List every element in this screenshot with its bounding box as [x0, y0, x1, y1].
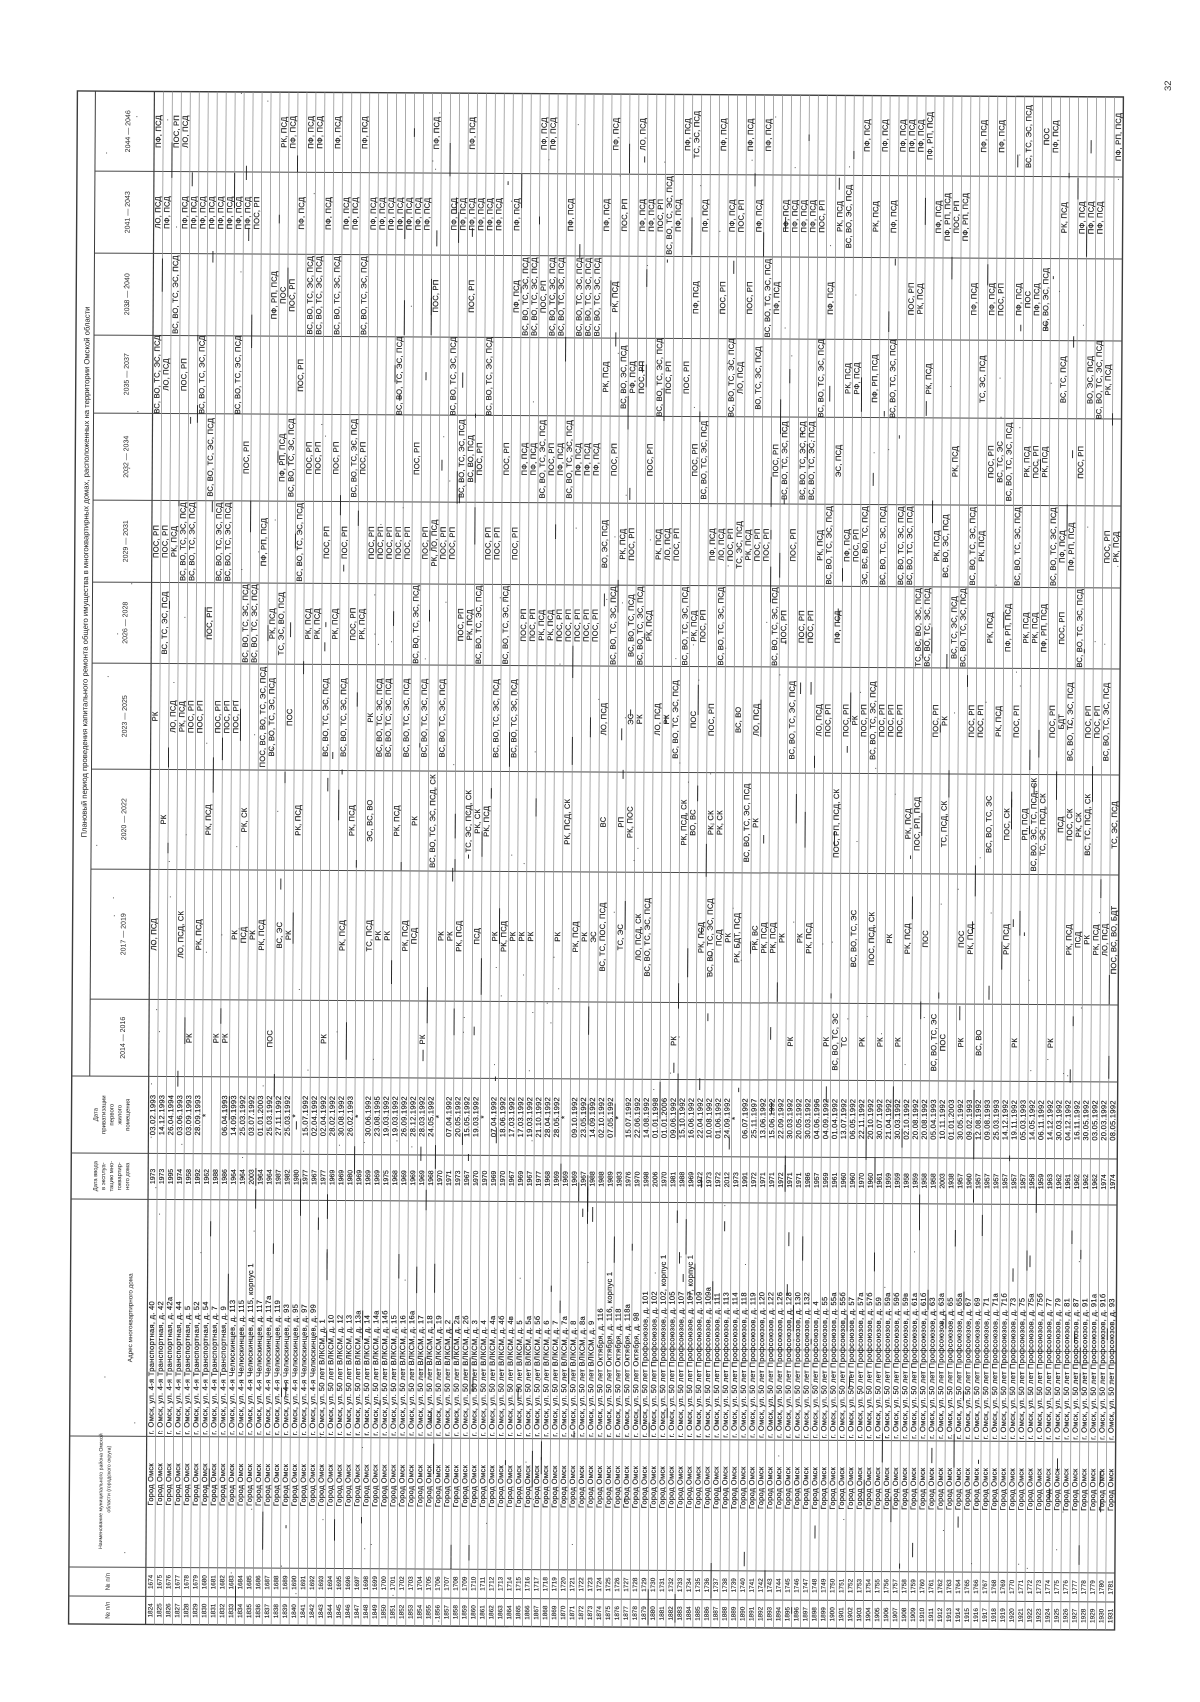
svg-text:ЛО, ПСД: ЛО, ПСД — [149, 918, 158, 950]
svg-text:01.01.1998: 01.01.1998 — [651, 1098, 660, 1139]
svg-text:Город Омск: Город Омск — [631, 1465, 640, 1508]
svg-text:РК, ПСД: РК, ПСД — [618, 529, 627, 560]
svg-text:1982: 1982 — [284, 1169, 291, 1185]
svg-text:1975: 1975 — [383, 1170, 390, 1186]
svg-text:1906: 1906 — [883, 1607, 890, 1622]
svg-text:30.08.1992: 30.08.1992 — [337, 1096, 346, 1137]
svg-text:1911: 1911 — [928, 1608, 935, 1622]
svg-text:1921: 1921 — [1018, 1608, 1025, 1623]
svg-text:Город Омск: Город Омск — [325, 1464, 334, 1507]
svg-text:1762: 1762 — [937, 1579, 944, 1594]
svg-text:ПОС, РП: ПОС, РП — [1012, 705, 1021, 738]
svg-text:ПОС, РП: ПОС, РП — [610, 443, 619, 476]
svg-text:Город Омск: Город Омск — [290, 1463, 299, 1506]
svg-text:РК: РК — [383, 930, 392, 940]
svg-text:1968: 1968 — [545, 1171, 552, 1187]
svg-text:1717: 1717 — [533, 1577, 540, 1592]
svg-text:ЭС, ВС, ВО, ТС, ПСД: ЭС, ВС, ВО, ТС, ПСД — [860, 506, 869, 585]
svg-text:1908: 1908 — [901, 1607, 908, 1622]
svg-text:ПОС, РП: ПОС, РП — [789, 529, 798, 562]
svg-text:1760: 1760 — [919, 1579, 926, 1594]
svg-text:ПОС, РП: ПОС, РП — [519, 609, 528, 642]
svg-text:ПОС, РП: ПОС, РП — [690, 444, 699, 477]
svg-text:01.01.2003: 01.01.2003 — [256, 1095, 265, 1136]
svg-text:РК: РК — [508, 931, 517, 941]
svg-text:ПОС, РП: ПОС, РП — [456, 608, 465, 641]
svg-text:1693: 1693 — [318, 1575, 325, 1590]
svg-text:1957: 1957 — [1020, 1174, 1027, 1190]
svg-text:15.07.1992: 15.07.1992 — [301, 1096, 310, 1137]
svg-text:ЛО, ПСД: ЛО, ПСД — [663, 528, 672, 560]
svg-text:ПФ, ПСД: ПФ, ПСД — [647, 199, 656, 232]
svg-text:Город Омск: Город Омск — [855, 1467, 864, 1510]
svg-text:ПФ, ПСД: ПФ, ПСД — [934, 201, 943, 234]
svg-text:ПОС, РП: ПОС, РП — [698, 610, 707, 643]
svg-text:РК, ПСД: РК, ПСД — [1091, 924, 1100, 955]
svg-text:Город Омск: Город Омск — [245, 1463, 254, 1506]
svg-text:1969: 1969 — [356, 1170, 363, 1186]
svg-text:ПОС, РП: ПОС, РП — [851, 529, 860, 562]
svg-text:1972: 1972 — [697, 1172, 704, 1188]
svg-text:РК, ПСД: РК, ПСД — [611, 282, 620, 313]
svg-text:1679: 1679 — [192, 1575, 199, 1590]
svg-text:17.03.1992: 17.03.1992 — [507, 1097, 516, 1138]
svg-text:1927: 1927 — [1072, 1608, 1079, 1623]
svg-text:1922: 1922 — [1027, 1608, 1034, 1623]
svg-text:1843: 1843 — [318, 1604, 325, 1619]
svg-text:22.04.1992: 22.04.1992 — [695, 1098, 704, 1139]
svg-text:Город Омск: Город Омск — [523, 1465, 532, 1508]
svg-text:ВС, ВО, ТС, ЭС, ПСД: ВС, ВО, ТС, ЭС, ПСД — [807, 421, 816, 500]
svg-text:ПФ, ПСД: ПФ, ПСД — [414, 198, 423, 231]
svg-text:1871: 1871 — [569, 1605, 576, 1620]
svg-text:ВС, ВО, ТС, ЭС, ПСД: ВС, ВО, ТС, ЭС, ПСД — [197, 335, 206, 414]
svg-text:19.11.1992: 19.11.1992 — [1010, 1100, 1019, 1140]
svg-text:1969: 1969 — [365, 1170, 372, 1186]
svg-text:ВС, ВО, ТС, ЭС, ПСД: ВС, ВО, ТС, ЭС, ПСД — [1013, 507, 1022, 586]
svg-text:ТС, ЭС, ВО, ПСД: ТС, ЭС, ВО, ПСД — [277, 592, 286, 655]
svg-text:26.09.1992: 26.09.1992 — [399, 1096, 408, 1137]
svg-text:ЛО, ПСД: ЛО, ПСД — [161, 358, 170, 390]
svg-text:РК, ПСД: РК, ПСД — [903, 923, 912, 954]
svg-text:ПФ, ПСД: ПФ, ПСД — [1095, 201, 1104, 234]
svg-text:1998: 1998 — [643, 1171, 650, 1187]
svg-text:ВС, ВО, ТС, ЭС, ПСД: ВС, ВО, ТС, ЭС, ПСД — [474, 585, 483, 664]
svg-text:1892: 1892 — [758, 1606, 765, 1621]
svg-text:04.06.1996: 04.06.1996 — [812, 1098, 821, 1139]
svg-text:ВС, ВО, ТС, ЭС, ПСД, СК: ВС, ВО, ТС, ЭС, ПСД, СК — [428, 774, 438, 868]
svg-text:РК, ПСД: РК, ПСД — [654, 529, 663, 560]
svg-text:1771: 1771 — [1018, 1579, 1025, 1594]
svg-text:РК, ПСД: РК, ПСД — [257, 920, 266, 951]
svg-text:Город Омск: Город Омск — [218, 1463, 227, 1506]
svg-text:ТС, ЭС, ПСД, СК: ТС, ЭС, ПСД, СК — [1038, 793, 1047, 856]
svg-text:РК, ПСД, СК: РК, ПСД, СК — [679, 799, 688, 845]
svg-text:Город Омск: Город Омск — [487, 1465, 496, 1508]
svg-text:РК, ПСД: РК, ПСД — [465, 609, 474, 640]
svg-text:ЛО, ПСД: ЛО, ПСД — [181, 115, 190, 147]
svg-text:ПОС, РП: ПОС, РП — [726, 528, 735, 561]
svg-text:1963: 1963 — [1047, 1174, 1054, 1190]
svg-text:ВС, ЭС: ВС, ЭС — [275, 921, 284, 948]
svg-text:1834: 1834 — [237, 1603, 244, 1618]
svg-text:Город Омск: Город Омск — [792, 1466, 801, 1509]
svg-text:1971: 1971 — [796, 1172, 803, 1188]
svg-text:ПОС, РП: ПОС, РП — [859, 704, 868, 737]
svg-text:ПОС, ВС, ВО, БДТ: ПОС, ВС, ВО, БДТ — [1109, 906, 1118, 975]
svg-text:1680: 1680 — [201, 1575, 208, 1590]
svg-text:1971: 1971 — [787, 1172, 794, 1188]
svg-text:1742: 1742 — [758, 1578, 765, 1593]
svg-text:ПФ, ПСД: ПФ, ПСД — [602, 199, 611, 232]
svg-text:23.08.1995: 23.08.1995 — [372, 1096, 381, 1137]
svg-text:03.06.1993: 03.06.1993 — [175, 1095, 184, 1136]
svg-text:ПОС, РП: ПОС, РП — [385, 526, 394, 559]
svg-text:ВС, ВО, ТС, ЭС, ПСД: ВС, ВО, ТС, ЭС, ПСД — [888, 339, 897, 418]
svg-text:РК: РК — [893, 1037, 902, 1047]
svg-text:1772: 1772 — [1027, 1579, 1034, 1594]
svg-text:Город Омск: Город Омск — [1007, 1468, 1016, 1511]
svg-text:1969: 1969 — [688, 1172, 695, 1188]
svg-text:1957: 1957 — [975, 1173, 982, 1189]
svg-text:ПОС: ПОС — [279, 286, 288, 304]
svg-text:02.10.1992: 02.10.1992 — [597, 1097, 606, 1138]
svg-text:ПОС, РП: ПОС, РП — [1076, 446, 1085, 479]
svg-text:ВС, ТС, ЭС: ВС, ТС, ЭС — [995, 441, 1004, 483]
svg-text:ПФ, ПСД: ПФ, ПСД — [396, 197, 405, 230]
svg-text:Город Омск: Город Омск — [936, 1467, 945, 1510]
svg-text:РК, ЛО, ПСД: РК, ЛО, ПСД — [430, 520, 439, 567]
svg-text:2014 — 2016: 2014 — 2016 — [120, 1017, 127, 1059]
svg-text:Город Омск: Город Омск — [747, 1466, 756, 1509]
svg-text:Город Омск: Город Омск — [182, 1463, 191, 1506]
svg-text:*: * — [560, 1116, 569, 1119]
svg-text:1878: 1878 — [632, 1606, 639, 1621]
svg-text:ПФ, ПСД: ПФ, ПСД — [674, 199, 683, 232]
svg-text:1973: 1973 — [455, 1170, 462, 1186]
svg-text:ПОС, РП: ПОС, РП — [895, 704, 904, 737]
svg-text:РК: РК — [230, 930, 239, 940]
svg-text:1710: 1710 — [471, 1576, 478, 1591]
svg-text:ПОС, РП: ПОС, РП — [172, 115, 181, 148]
svg-text:1727: 1727 — [623, 1577, 630, 1592]
svg-text:ВС, ВО, ТС, ЭС, ПСД: ВС, ВО, ТС, ЭС, ПСД — [699, 421, 708, 500]
svg-text:Город Омск: Город Омск — [945, 1467, 954, 1510]
svg-text:1827: 1827 — [174, 1603, 181, 1618]
svg-text:03.02.1993: 03.02.1993 — [148, 1095, 157, 1136]
svg-text:1957: 1957 — [957, 1173, 964, 1189]
svg-text:1731: 1731 — [659, 1577, 666, 1592]
svg-text:1959: 1959 — [895, 1173, 902, 1189]
svg-text:1703: 1703 — [408, 1576, 415, 1591]
svg-text:1765: 1765 — [964, 1579, 971, 1594]
svg-text:*: * — [434, 1115, 443, 1118]
svg-text:1969: 1969 — [329, 1170, 336, 1186]
svg-text:РК: РК — [751, 818, 760, 828]
svg-text:ПОС, РП: ПОС, РП — [439, 527, 448, 560]
svg-text:РК, ПСД: РК, ПСД — [357, 609, 366, 640]
svg-text:ПОС, РП: ПОС, РП — [1084, 705, 1093, 738]
svg-text:ПФ, ПСД: ПФ, ПСД — [351, 197, 360, 230]
svg-text:РК, ПСД: РК, ПСД — [1104, 364, 1113, 395]
svg-text:РК, ПСД: РК, ПСД — [204, 804, 213, 835]
svg-text:1890: 1890 — [740, 1606, 747, 1621]
svg-text:1988: 1988 — [679, 1172, 686, 1188]
svg-text:ПОС, РП: ПОС, РП — [1048, 705, 1057, 738]
svg-text:ПФ, ПСД: ПФ, ПСД — [243, 197, 252, 230]
svg-text:1690: 1690 — [291, 1575, 298, 1590]
svg-text:ВС, ВО, ТС, ЭС, ПСД: ВС, ВО, ТС, ЭС, ПСД — [680, 587, 689, 666]
svg-text:2017 — 2019: 2017 — 2019 — [120, 913, 127, 955]
svg-text:1764: 1764 — [955, 1579, 962, 1594]
svg-text:ПФ, ПСД: ПФ, ПСД — [728, 199, 737, 232]
svg-text:2044 — 2046: 2044 — 2046 — [125, 110, 132, 152]
svg-text:1970: 1970 — [473, 1170, 480, 1186]
svg-text:*: * — [479, 1115, 488, 1118]
svg-text:Город Омск: Город Омск — [882, 1467, 891, 1510]
svg-text:1902: 1902 — [847, 1607, 854, 1622]
svg-text:РК, ПСД: РК, ПСД — [759, 922, 768, 953]
svg-text:РК, ПСД: РК, ПСД — [499, 921, 508, 952]
svg-text:1896: 1896 — [793, 1607, 800, 1622]
svg-text:01.06.1992: 01.06.1992 — [713, 1098, 722, 1139]
svg-text:РК: РК — [1046, 1038, 1055, 1048]
svg-text:1873: 1873 — [587, 1605, 594, 1620]
svg-text:ПФ, ПСД: ПФ, ПСД — [997, 120, 1006, 153]
svg-text:РК: РК — [724, 932, 733, 942]
svg-text:ПОС, РП: ПОС, РП — [288, 279, 297, 312]
svg-text:ВС, ВО, ТС, ЭС, ПСД: ВС, ВО, ТС, ЭС, ПСД — [1075, 589, 1084, 668]
svg-text:1780: 1780 — [1099, 1580, 1106, 1595]
svg-text:1973: 1973 — [159, 1169, 166, 1185]
svg-text:ПФ, ПСД: ПФ, ПСД — [1014, 283, 1023, 316]
svg-text:ВС, ТС, ЭС, ПСД: ВС, ТС, ЭС, ПСД — [1024, 105, 1033, 168]
svg-text:1980: 1980 — [347, 1170, 354, 1186]
svg-text:1962: 1962 — [1056, 1174, 1063, 1190]
svg-text:1733: 1733 — [677, 1577, 684, 1592]
svg-text:1989: 1989 — [607, 1171, 614, 1187]
svg-text:1874: 1874 — [596, 1605, 603, 1620]
svg-text:1781: 1781 — [1108, 1580, 1115, 1595]
svg-text:РК, ПСД: РК, ПСД — [279, 117, 288, 148]
svg-text:1976: 1976 — [625, 1171, 632, 1187]
svg-text:ПФ, ПСД: ПФ, ПСД — [987, 283, 996, 316]
svg-text:30.03.1992: 30.03.1992 — [803, 1098, 812, 1139]
svg-text:1987: 1987 — [276, 1169, 283, 1185]
svg-text:1904: 1904 — [865, 1607, 872, 1622]
svg-text:РК, БДТ, ПСД: РК, БДТ, ПСД — [732, 913, 741, 963]
svg-text:07.04.1992: 07.04.1992 — [444, 1096, 453, 1137]
svg-text:ЭС, ВС, ВО: ЭС, ВС, ВО — [365, 799, 374, 841]
svg-text:1840: 1840 — [291, 1604, 298, 1619]
svg-text:РК, ПСД: РК, ПСД — [392, 805, 401, 836]
svg-text:1753: 1753 — [856, 1578, 863, 1593]
svg-text:2032 — 2034: 2032 — 2034 — [123, 436, 130, 478]
svg-text:РК, ВС: РК, ВС — [750, 925, 759, 951]
svg-text:ВС, ВО, ТС, ЭС, ПСД: ВС, ВО, ТС, ЭС, ПСД — [491, 679, 500, 758]
svg-text:1866: 1866 — [524, 1605, 531, 1620]
svg-text:Город Омск: Город Омск — [496, 1465, 505, 1508]
svg-text:ВС, ВО, ТС, ЭС, ПСД: ВС, ВО, ТС, ЭС, ПСД — [968, 507, 977, 586]
svg-text:1969: 1969 — [554, 1171, 561, 1187]
svg-text:ПОС, РП: ПОС, РП — [718, 281, 727, 314]
svg-text:ВС, ВО, ТС, ЭС, ПСД: ВС, ВО, ТС, ЭС, ПСД — [727, 338, 736, 417]
svg-text:ПСД: ПСД — [715, 929, 724, 946]
svg-text:1969: 1969 — [563, 1171, 570, 1187]
svg-text:Город Омск: Город Омск — [334, 1464, 343, 1507]
svg-text:РК: РК — [956, 1037, 965, 1047]
svg-text:Город Омск: Город Омск — [397, 1464, 406, 1507]
svg-text:ВС, ВО, ТС, ЭС, ПСД: ВС, ВО, ТС, ЭС, ПСД — [420, 679, 429, 758]
svg-text:ПОС, РП: ПОС, РП — [340, 526, 349, 559]
svg-text:РК: РК — [940, 716, 949, 726]
svg-text:РК, ПСД: РК, ПСД — [330, 608, 339, 639]
svg-text:1970: 1970 — [500, 1171, 507, 1187]
svg-text:1879: 1879 — [641, 1606, 648, 1621]
svg-text:ПОС, РП: ПОС, РП — [186, 700, 195, 733]
svg-text:1960: 1960 — [841, 1173, 848, 1189]
svg-text:ВС, ВО, ТС, ЭС, ПСД: ВС, ВО, ТС, ЭС, ПСД — [187, 502, 196, 581]
svg-text:1684: 1684 — [237, 1575, 244, 1590]
svg-text:ПФ, ПСД: ПФ, ПСД — [180, 196, 189, 229]
svg-text:РК: РК — [850, 715, 859, 725]
svg-text:ПОС, РП: ПОС, РП — [502, 442, 511, 475]
svg-text:1694: 1694 — [327, 1575, 334, 1590]
svg-text:1964: 1964 — [258, 1169, 265, 1185]
svg-text:1725: 1725 — [605, 1577, 612, 1592]
svg-text:ПОС, РП, ПСД, СК: ПОС, РП, ПСД, СК — [832, 788, 841, 857]
svg-text:ТС, ЭС, ПСД: ТС, ЭС, ПСД — [1110, 801, 1119, 849]
svg-text:26.04.1994: 26.04.1994 — [166, 1095, 175, 1136]
svg-text:1969: 1969 — [491, 1171, 498, 1187]
svg-text:1848: 1848 — [363, 1604, 370, 1619]
svg-text:Город Омск: Город Омск — [173, 1463, 182, 1506]
svg-text:РК, ПСД: РК, ПСД — [815, 530, 824, 561]
svg-text:ПОС, РП: ПОС, РП — [582, 609, 591, 642]
svg-text:1778: 1778 — [1081, 1580, 1088, 1595]
svg-text:1899: 1899 — [820, 1607, 827, 1622]
svg-text:1924: 1924 — [1045, 1608, 1052, 1623]
svg-text:1713: 1713 — [497, 1576, 504, 1591]
svg-text:ВС, ВО, ТС, ЭС, ПСД: ВС, ВО, ТС, ЭС, ПСД — [665, 176, 674, 255]
svg-text:ВС, ВО, ТС, ЭС, ПСД: ВС, ВО, ТС, ЭС, ПСД — [250, 584, 259, 663]
svg-text:Город Омск: Город Омск — [810, 1466, 819, 1509]
svg-text:РК, ПСД: РК, ПСД — [1060, 202, 1069, 233]
svg-text:РК: РК — [553, 931, 562, 941]
svg-text:1697: 1697 — [354, 1576, 361, 1591]
svg-text:1758: 1758 — [901, 1579, 908, 1594]
svg-text:1682: 1682 — [219, 1575, 226, 1590]
svg-text:1736: 1736 — [704, 1578, 711, 1593]
svg-text:1674: 1674 — [148, 1574, 155, 1589]
svg-text:1706: 1706 — [435, 1576, 442, 1591]
svg-text:ПОС, РП: ПОС, РП — [394, 526, 403, 559]
svg-text:РК, ПСД: РК, ПСД — [1112, 531, 1121, 562]
svg-text:Город Омск: Город Омск — [1025, 1468, 1034, 1511]
svg-text:ПОС, РП: ПОС, РП — [195, 700, 204, 733]
svg-text:РК: РК — [580, 932, 589, 942]
svg-text:Город Омск: Город Омск — [693, 1466, 702, 1509]
svg-text:1757: 1757 — [892, 1579, 899, 1594]
svg-text:1967: 1967 — [527, 1171, 534, 1187]
svg-text:ПОС: ПОС — [689, 710, 698, 728]
svg-text:ПОС, РП: ПОС, РП — [682, 361, 691, 394]
svg-text:2035 — 2037: 2035 — 2037 — [124, 353, 131, 395]
svg-text:ЛО, ПСД: ЛО, ПСД — [717, 528, 726, 560]
svg-text:ПОС, РП: ПОС, РП — [573, 609, 582, 642]
svg-text:ПОС, РП: ПОС, РП — [1031, 445, 1040, 478]
svg-text:1968: 1968 — [428, 1170, 435, 1186]
svg-text:РК, ПСД: РК, ПСД — [268, 608, 277, 639]
svg-text:Город Омск: Город Омск — [729, 1466, 738, 1509]
svg-text:1702: 1702 — [399, 1576, 406, 1591]
svg-text:19.03.1992: 19.03.1992 — [381, 1096, 390, 1137]
svg-text:1962: 1962 — [1092, 1174, 1099, 1190]
svg-text:1692: 1692 — [309, 1575, 316, 1590]
svg-text:1704: 1704 — [417, 1576, 424, 1591]
svg-text:РК, ПСД: РК, ПСД — [571, 921, 580, 952]
svg-text:ВС, ТС, ПСД, СК: ВС, ТС, ПСД, СК — [1083, 793, 1092, 855]
svg-text:ЛО, ПСД, СК: ЛО, ПСД, СК — [176, 911, 185, 959]
svg-text:30.05.1992: 30.05.1992 — [956, 1099, 965, 1140]
svg-text:Город Омск: Город Омск — [684, 1466, 693, 1509]
svg-text:Город Омск: Город Омск — [1088, 1468, 1097, 1511]
svg-text:1737: 1737 — [713, 1578, 720, 1593]
svg-text:1831: 1831 — [210, 1603, 217, 1618]
svg-text:ВС, ВО: ВС, ВО — [734, 707, 743, 733]
svg-text:1826: 1826 — [165, 1603, 172, 1618]
svg-text:09.10.1992: 09.10.1992 — [570, 1097, 579, 1138]
svg-text:ПОС, РП: ПОС, РП — [475, 442, 484, 475]
svg-text:РК: РК — [1010, 1038, 1019, 1048]
svg-text:РК, ПСД: РК, ПСД — [454, 921, 463, 952]
svg-text:ПОС, СК: ПОС, СК — [1002, 808, 1011, 841]
svg-text:РК, ПСД: РК, ПСД — [1022, 446, 1031, 477]
svg-text:ТС, ЭС, ПСД: ТС, ЭС, ПСД — [692, 111, 701, 159]
svg-text:ПФ, ПСД: ПФ, ПСД — [683, 118, 692, 151]
svg-text:1862: 1862 — [488, 1605, 495, 1620]
svg-text:ПФ, ПСД: ПФ, ПСД — [799, 200, 808, 233]
svg-text:РК, СК: РК, СК — [715, 810, 724, 835]
svg-text:1705: 1705 — [426, 1576, 433, 1591]
svg-text:ПОС, РП: ПОС, РП — [555, 609, 564, 642]
svg-text:РК, ПСД: РК, ПСД — [645, 610, 654, 641]
svg-text:1969: 1969 — [419, 1170, 426, 1186]
svg-text:13.07.1992: 13.07.1992 — [839, 1099, 848, 1140]
svg-text:ПОС, РП: ПОС, РП — [645, 443, 654, 476]
svg-text:Город Омск: Город Омск — [801, 1466, 810, 1509]
svg-text:1754: 1754 — [865, 1578, 872, 1593]
svg-text:1864: 1864 — [506, 1605, 513, 1620]
svg-text:25.03.1992: 25.03.1992 — [265, 1095, 274, 1136]
svg-text:13.06.1992: 13.06.1992 — [758, 1098, 767, 1139]
svg-text:Город Омск: Город Омск — [963, 1467, 972, 1510]
svg-text:ПФ, РП, ПСД: ПФ, РП, ПСД — [925, 112, 934, 160]
svg-text:ПФ, ПСД: ПФ, ПСД — [899, 119, 908, 152]
svg-text:ПФ, ПСД: ПФ, ПСД — [566, 198, 575, 231]
svg-text:1875: 1875 — [605, 1605, 612, 1620]
svg-text:Город Омск: Город Омск — [433, 1464, 442, 1507]
svg-text:Город Омск: Город Омск — [1052, 1468, 1061, 1511]
svg-text:ПОС, РП: ПОС, РП — [179, 358, 188, 391]
svg-text:РК: РК — [1082, 934, 1091, 944]
svg-text:РК: РК — [635, 714, 644, 724]
svg-text:ВС, ВО, ТС, ЭС, ПСД: ВС, ВО, ТС, ЭС, ПСД — [780, 421, 789, 500]
svg-text:РК, ПСД: РК, ПСД — [835, 201, 844, 232]
svg-text:ПФ, ПСД: ПФ, ПСД — [881, 119, 890, 152]
svg-text:1958: 1958 — [930, 1173, 937, 1189]
svg-text:РП, ПСД: РП, ПСД — [1020, 808, 1029, 840]
